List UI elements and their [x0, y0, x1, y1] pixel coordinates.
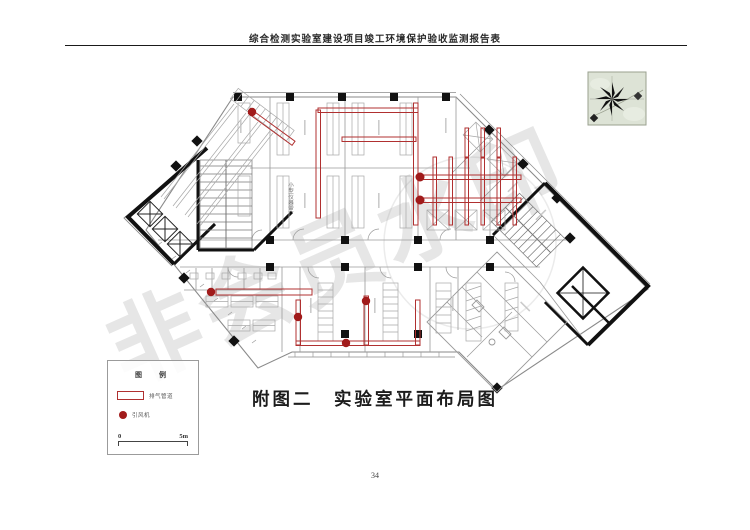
north-compass-icon — [588, 72, 646, 125]
elevator-shaft-right — [558, 268, 609, 319]
page-number: 34 — [0, 471, 750, 480]
elevator-shafts-left — [137, 201, 192, 256]
watermark-arc — [384, 157, 556, 329]
fan-symbol — [119, 411, 127, 419]
scale-bar: 0 5m — [118, 433, 188, 446]
scale-line — [118, 441, 188, 446]
scale-end: 5m — [179, 433, 188, 440]
legend-title: 图 例 — [108, 370, 198, 380]
stair-left — [200, 160, 252, 248]
interior-walls — [158, 97, 588, 352]
room-label: 小型仪器室 — [287, 181, 294, 212]
figure-caption: 附图二 实验室平面布局图 — [0, 386, 750, 411]
report-page: 综合检测实验室建设项目竣工环境保护验收监测报告表 非会员水印 — [0, 0, 750, 530]
lab-benches — [161, 88, 518, 341]
legend-label-fan: 引风机 — [132, 411, 150, 419]
scale-start: 0 — [118, 433, 121, 440]
exhaust-pipe-network — [216, 103, 521, 346]
legend-item-fan: 引风机 — [117, 411, 198, 419]
